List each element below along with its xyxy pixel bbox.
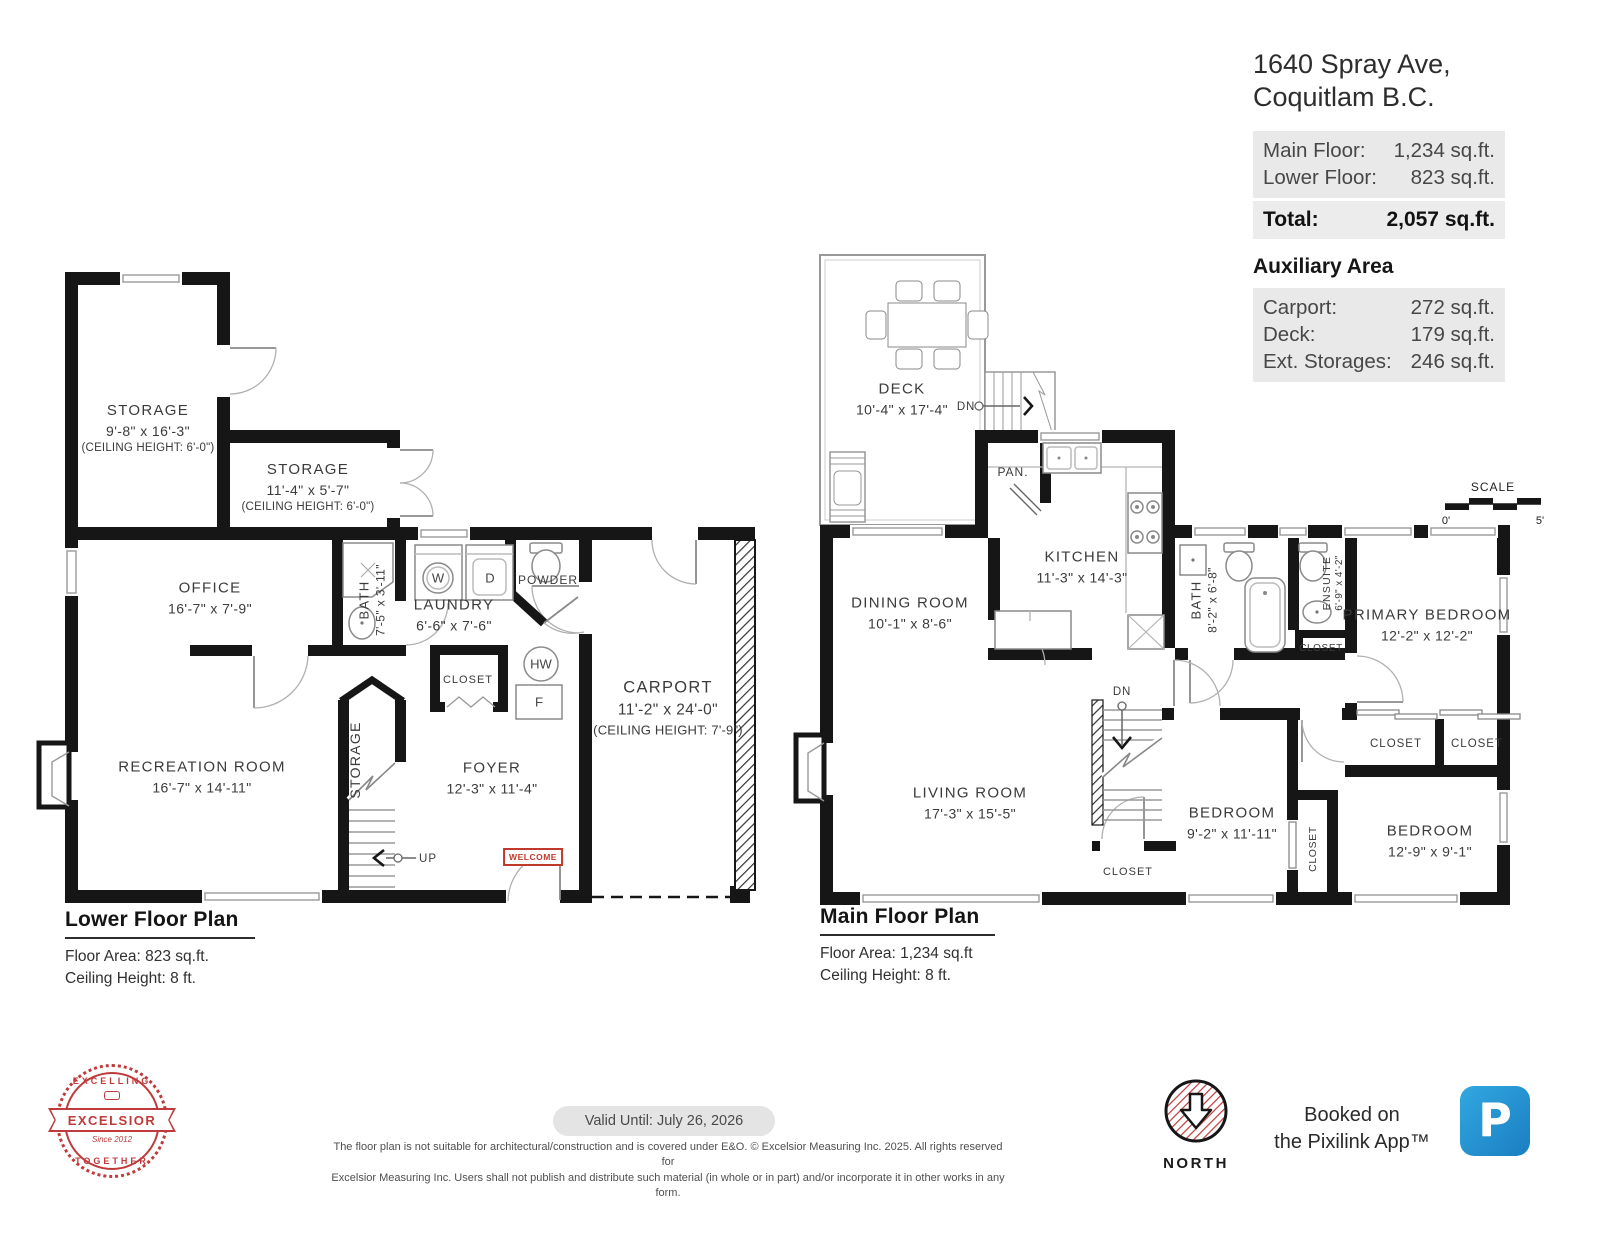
room-name: CLOSET [443,674,493,686]
room-dims: 17'-3" x 15'-5" [913,806,1027,822]
main-floor-plan: DECK 10'-4" x 17'-4" DN PAN. KITCHEN 11'… [790,245,1560,980]
room-name: POWDER [518,573,578,587]
furnace-label: F [535,695,543,710]
dryer-label: D [485,571,494,586]
room-bedroom-b: BEDROOM 12'-9" x 9'-1" [1387,823,1474,860]
pixilink-letter: P [1478,1093,1512,1147]
room-name: BATH [357,564,372,636]
room-name: ENSUITE [1321,555,1333,611]
room-name: BEDROOM [1387,823,1474,840]
logo-together-text: TOGETHER [56,1156,168,1166]
booked-on-text: Booked on the Pixilink App™ [1248,1102,1456,1156]
property-address: 1640 Spray Ave, Coquitlam B.C. [1253,48,1505,115]
room-name: KITCHEN [1036,549,1127,566]
room-name: STORAGE [347,721,363,798]
room-name: RECREATION ROOM [118,759,286,776]
closet-between-bedrooms: CLOSET [1303,826,1321,872]
room-dims: 6'-9" x 4'-2" [1334,555,1345,611]
up-label: UP [419,849,437,867]
up-arrow [374,850,384,866]
room-office: OFFICE 16'-7" x 7'-9" [168,580,252,617]
closet-under-stairs: CLOSET [1103,862,1153,880]
north-icon [1161,1076,1231,1146]
room-name: CARPORT [593,679,743,698]
bath-toilet [1226,551,1252,581]
room-ensuite: ENSUITE 6'-9" x 4'-2" [1321,555,1345,611]
room-dims: 12'-9" x 9'-1" [1387,844,1474,860]
room-dims: 10'-1" x 8'-6" [851,616,969,632]
kitchen-island [995,611,1071,649]
closet-primary-right: CLOSET [1451,734,1503,752]
disclaimer-line1: The floor plan is not suitable for archi… [330,1140,1006,1171]
room-name: LAUNDRY [414,597,495,614]
total-area-row: Total: 2,057 sq.ft. [1253,201,1505,239]
room-powder: POWDER [518,573,578,587]
room-dims: 16'-7" x 14'-11" [118,780,286,796]
room-pantry: PAN. [997,465,1028,479]
floor-areas-panel: Main Floor: 1,234 sq.ft. Lower Floor: 82… [1253,131,1505,198]
total-value: 2,057 sq.ft. [1386,208,1495,232]
room-name: BEDROOM [1187,805,1277,822]
room-dining: DINING ROOM 10'-1" x 8'-6" [851,595,969,632]
room-deck: DECK 10'-4" x 17'-4" [856,381,948,418]
north-label: NORTH [1158,1155,1234,1172]
booked-line1: Booked on [1248,1102,1456,1129]
fireplace [39,743,69,807]
pixilink-logo: P [1460,1086,1530,1156]
room-recreation: RECREATION ROOM 16'-7" x 14'-11" [118,759,286,796]
room-dims: 6'-6" x 7'-6" [414,618,495,634]
room-dims: 9'-2" x 11'-11" [1187,826,1277,842]
logo-excelling-text: EXCELLING [56,1076,168,1086]
room-name: PRIMARY BEDROOM [1343,607,1512,624]
room-laundry: LAUNDRY 6'-6" x 7'-6" [414,597,495,634]
welcome-mat: WELCOME [503,848,563,866]
lower-plan-title-block: Lower Floor Plan Floor Area: 823 sq.ft. … [65,908,255,990]
lower-floor-row: Lower Floor: 823 sq.ft. [1263,165,1495,192]
north-indicator: NORTH [1158,1076,1234,1172]
room-living: LIVING ROOM 17'-3" x 15'-5" [913,785,1027,822]
hot-water-label: HW [530,657,552,672]
room-storage-b: STORAGE 11'-4" x 5'-7" (CEILING HEIGHT: … [242,461,375,513]
room-name: LIVING ROOM [913,785,1027,802]
room-name: DECK [856,381,948,398]
washer-label: W [432,571,444,586]
scale-zero: 0' [1442,511,1450,529]
room-name: BATH [1189,567,1204,633]
room-dims: 11'-2" x 24'-0" [593,702,743,720]
lower-floor-walls [30,260,770,920]
disclaimer-line2: Excelsior Measuring Inc. Users shall not… [330,1171,1006,1202]
room-name: STORAGE [242,461,375,478]
lower-plan-ceiling: Ceiling Height: 8 ft. [65,968,255,990]
disclaimer: The floor plan is not suitable for archi… [330,1140,1006,1202]
main-plan-title: Main Floor Plan [820,905,995,936]
scale-label: SCALE [1471,478,1515,496]
floorplan-sheet: 1640 Spray Ave, Coquitlam B.C. Main Floo… [0,0,1600,1237]
logo-excelsior-text: EXCELSIOR [51,1110,173,1130]
room-ceiling: (CEILING HEIGHT: 7'-9") [593,723,743,738]
address-line1: 1640 Spray Ave, [1253,48,1505,81]
room-kitchen: KITCHEN 11'-3" x 14'-3" [1036,549,1127,586]
room-carport: CARPORT 11'-2" x 24'-0" (CEILING HEIGHT:… [593,679,743,738]
logo-banner: EXCELSIOR [48,1108,176,1132]
deck-dn-label: DN [957,397,975,415]
total-label: Total: [1263,208,1319,232]
deck-stairs [985,372,1055,432]
room-dims: 12'-2" x 12'-2" [1343,628,1512,644]
booked-line2: the Pixilink App™ [1248,1129,1456,1156]
measuring-tape-icon [104,1091,120,1100]
room-primary-bedroom: PRIMARY BEDROOM 12'-2" x 12'-2" [1343,607,1512,644]
closet-ensuite: CLOSET [1299,638,1343,656]
scale-bar [1445,498,1541,510]
room-bath-main: BATH 8'-2" x 6'-8" [1189,567,1220,633]
room-dims: 10'-4" x 17'-4" [856,402,948,418]
main-floor-row: Main Floor: 1,234 sq.ft. [1263,138,1495,165]
room-bedroom-a: BEDROOM 9'-2" x 11'-11" [1187,805,1277,842]
closet-sliders [1357,710,1520,719]
lower-floor-value: 823 sq.ft. [1411,165,1495,192]
stairs-down [1092,700,1162,825]
room-ceiling: (CEILING HEIGHT: 6'-0") [82,442,215,454]
room-storage-stairs: STORAGE [347,721,363,798]
room-name: STORAGE [82,402,215,419]
excelsior-logo: EXCELLING EXCELSIOR Since 2012 TOGETHER [56,1064,168,1178]
room-ceiling: (CEILING HEIGHT: 6'-0") [242,501,375,513]
lower-floor-plan: STORAGE 9'-8" x 16'-3" (CEILING HEIGHT: … [30,260,770,980]
deck-table [888,303,966,347]
main-plan-ceiling: Ceiling Height: 8 ft. [820,965,995,987]
room-name: DINING ROOM [851,595,969,612]
room-dims: 16'-7" x 7'-9" [168,601,252,617]
room-dims: 8'-2" x 6'-8" [1206,567,1220,633]
room-storage-a: STORAGE 9'-8" x 16'-3" (CEILING HEIGHT: … [82,402,215,454]
main-floor-walls [790,245,1560,905]
room-dims: 7'-5" x 3'-11" [374,564,388,636]
room-name: FOYER [446,760,537,777]
address-line2: Coquitlam B.C. [1253,81,1505,114]
closet-primary-left: CLOSET [1370,734,1422,752]
lower-plan-area: Floor Area: 823 sq.ft. [65,946,255,968]
powder-room-walls [510,592,584,633]
room-dims: 11'-3" x 14'-3" [1036,570,1127,586]
room-foyer: FOYER 12'-3" x 11'-4" [446,760,537,797]
room-name: OFFICE [168,580,252,597]
valid-until-badge: Valid Until: July 26, 2026 [553,1106,775,1136]
fireplace [796,735,824,801]
room-bath-lower: BATH 7'-5" x 3'-11" [357,564,388,636]
main-floor-label: Main Floor: [1263,138,1366,165]
room-closet-lower: CLOSET [443,674,493,686]
main-plan-area: Floor Area: 1,234 sq.ft [820,943,995,965]
room-dims: 9'-8" x 16'-3" [82,423,215,439]
lower-floor-label: Lower Floor: [1263,165,1377,192]
room-name: PAN. [997,465,1028,479]
room-dims: 12'-3" x 11'-4" [446,781,537,797]
stairs-dn-label: DN [1113,682,1131,700]
main-plan-title-block: Main Floor Plan Floor Area: 1,234 sq.ft … [820,905,995,987]
main-floor-value: 1,234 sq.ft. [1394,138,1495,165]
scale-five: 5' [1536,511,1544,529]
lower-plan-title: Lower Floor Plan [65,908,255,939]
room-dims: 11'-4" x 5'-7" [242,482,375,498]
logo-since-text: Since 2012 [56,1135,168,1144]
